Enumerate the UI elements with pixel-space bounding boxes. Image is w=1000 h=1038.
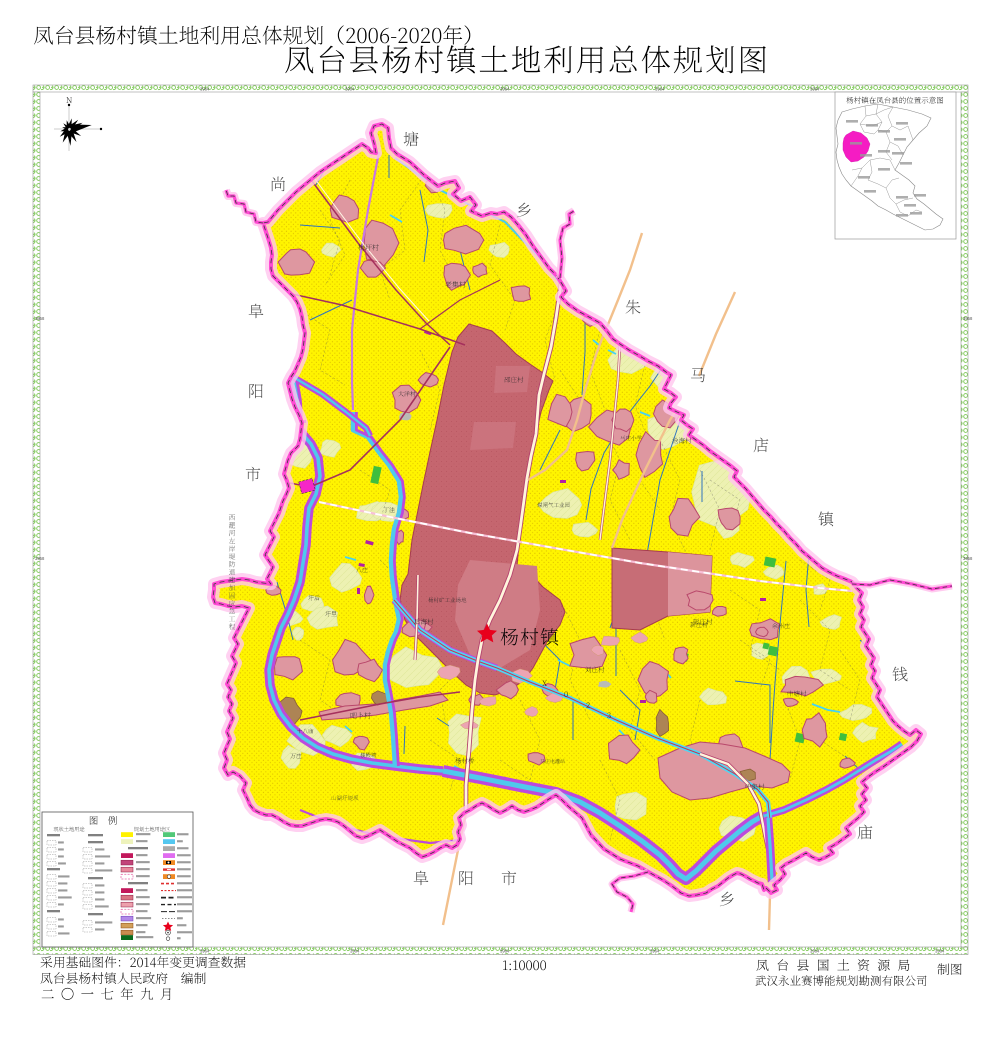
svg-text:3964: 3964 xyxy=(500,949,510,954)
svg-text:3958: 3958 xyxy=(963,556,973,561)
svg-text:3964: 3964 xyxy=(500,87,510,92)
svg-text:3964: 3964 xyxy=(655,87,665,92)
svg-text:3964: 3964 xyxy=(200,87,210,92)
svg-text:3964: 3964 xyxy=(200,949,210,954)
svg-text:3964: 3964 xyxy=(810,949,820,954)
svg-text:3958: 3958 xyxy=(35,556,45,561)
svg-text:3964: 3964 xyxy=(345,87,355,92)
svg-text:3964: 3964 xyxy=(650,949,660,954)
svg-text:3964: 3964 xyxy=(810,87,820,92)
svg-text:3958: 3958 xyxy=(35,316,45,321)
svg-text:3958: 3958 xyxy=(963,316,973,321)
svg-text:3964: 3964 xyxy=(935,949,945,954)
svg-text:3964: 3964 xyxy=(350,949,360,954)
